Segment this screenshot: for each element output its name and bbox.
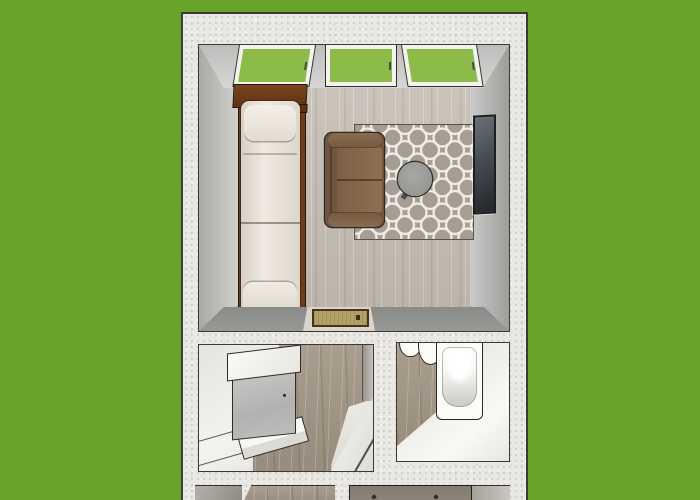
wall-art	[473, 114, 496, 214]
wall-ledge-edge	[198, 453, 242, 467]
sofa	[325, 133, 384, 227]
window-handle-icon	[389, 62, 392, 70]
window-handle-icon	[471, 62, 475, 70]
sofa-cushion-seam	[337, 179, 382, 181]
wall-niche-face	[362, 345, 373, 401]
floorplan-scene	[0, 0, 700, 500]
sofa-seat-cushions	[337, 146, 382, 214]
bathtub	[436, 343, 483, 420]
bathtub-basin	[442, 347, 477, 407]
hallway-floor	[242, 485, 335, 500]
living-room	[198, 44, 510, 332]
window-handle-icon	[304, 62, 308, 70]
bathroom	[396, 342, 510, 462]
window-3	[402, 45, 482, 86]
bottom-right-wall-face	[472, 485, 510, 500]
round-coffee-table	[398, 162, 432, 196]
bed	[232, 84, 309, 329]
door-mat	[312, 309, 369, 327]
sofa-armrest-top	[328, 133, 382, 147]
cabinet-knob-icon	[283, 394, 286, 397]
window-1	[234, 45, 315, 86]
bed-mattress	[241, 101, 300, 321]
sofa-back-seam	[330, 147, 332, 213]
dresser-knob-icon	[433, 494, 439, 500]
door-mat-emblem	[356, 315, 360, 320]
dresser-knob-icon	[371, 494, 377, 500]
duvet-fold	[243, 153, 297, 155]
bottom-left-wall-face	[195, 485, 242, 500]
duvet-seam	[241, 222, 300, 224]
dresser-top	[349, 485, 472, 500]
bed-pillow	[244, 105, 296, 141]
closet-room	[198, 344, 374, 472]
house-plan	[181, 12, 528, 500]
sofa-armrest-bottom	[328, 213, 382, 227]
window-2	[326, 45, 396, 86]
